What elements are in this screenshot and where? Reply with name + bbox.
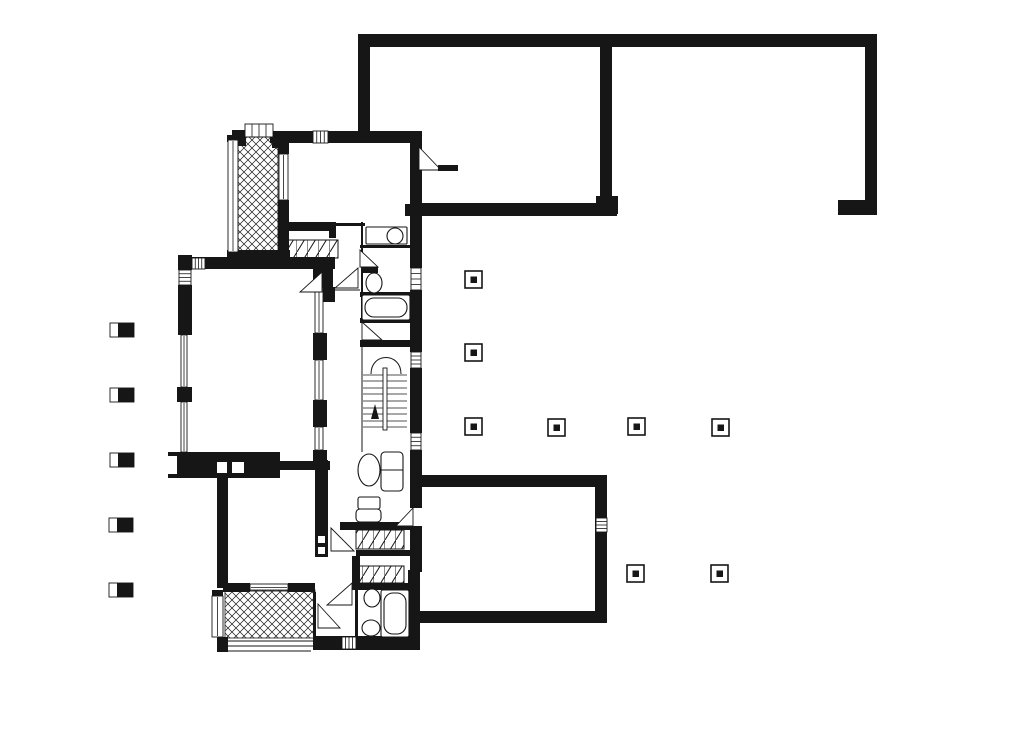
closet-hatch [288,240,338,258]
wall-segment [278,132,289,154]
toilet-bowl [364,589,380,607]
wall-segment [405,204,435,216]
column-core [471,277,478,284]
door-swing [335,268,358,288]
wall-segment [217,478,228,588]
wall-segment [178,285,192,335]
column-core [633,571,640,578]
wall-segment [360,340,410,347]
wall-segment [595,475,607,623]
post-marker-core [118,453,134,467]
armchair [358,454,380,486]
wall-segment [288,222,336,231]
column-core [471,350,478,357]
terrace-crosshatch [238,137,278,252]
wall-segment [217,637,228,652]
wall-segment [313,400,327,427]
chair-seat [356,509,381,522]
door-swing [318,604,340,628]
column-core [718,425,725,432]
wall-segment [360,245,410,248]
floor-plan [0,0,1024,750]
wall-segment [329,222,336,238]
chair-back [358,497,380,509]
wall-segment [356,550,420,556]
wall-opening [318,547,325,554]
wall-segment [355,590,358,636]
wall-segment [278,200,289,252]
plan-layer [109,34,877,652]
wall-segment [410,526,422,572]
toilet-bowl [387,228,403,244]
bathtub [365,298,407,317]
wall-segment [410,290,422,352]
door-swing [300,272,322,292]
wall-segment [270,131,422,143]
column-core [717,571,724,578]
door-leaf [362,267,378,273]
closet-hatch [356,530,404,549]
stair-direction-arrow [371,404,379,419]
wall-segment [838,200,877,215]
wall-segment [313,333,327,360]
post-marker-core [118,323,134,337]
wall-segment [600,34,612,204]
wall-segment [410,203,617,216]
door-swing [360,250,378,267]
wall-segment [335,223,365,226]
wall-segment [358,34,877,47]
closet-hatch [356,566,404,583]
wall-segment [177,387,192,402]
door-swing [419,147,441,170]
terrace-crosshatch [225,590,315,638]
wall-segment [315,460,328,528]
post-marker-core [117,583,133,597]
wall-opening [168,456,177,474]
floor-plan-drawing [0,0,1024,750]
wall-segment [410,216,422,268]
sink [366,273,382,293]
wall-segment [212,590,223,596]
post-marker-core [118,388,134,402]
wall-opening [217,462,227,473]
wall-segment [358,34,370,142]
wall-segment [413,475,607,487]
post-marker-core [117,518,133,532]
wall-segment [410,368,422,433]
door-swing [331,528,354,551]
column-core [554,425,561,432]
stair-stringer [383,368,387,430]
sofa [381,452,403,491]
wall-segment [352,583,420,590]
wall-opening [232,462,244,473]
wall-segment [313,636,420,650]
door-leaf [438,165,458,171]
column-core [471,424,478,431]
wall-opening [318,536,325,543]
wall-segment [865,34,877,206]
door-swing [362,322,382,340]
door-swing [396,508,413,526]
bathtub [384,593,406,634]
door-swing [327,583,352,605]
wall-segment [413,611,607,623]
sink [362,620,380,636]
column-core [634,424,641,431]
